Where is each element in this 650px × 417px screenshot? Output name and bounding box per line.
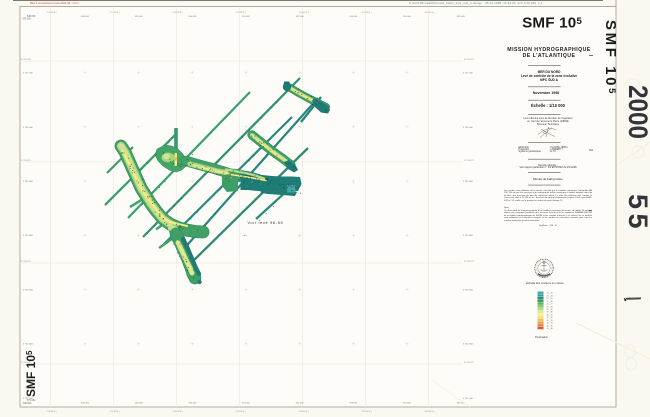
svg-text:24 _ 25: 24 _ 25 [547,298,553,300]
svg-text:5 736 000: 5 736 000 [23,127,34,129]
svg-text:5 734 000: 5 734 000 [23,235,34,237]
svg-text:548 000: 548 000 [81,16,90,18]
svg-text:51°18'00"N: 51°18'00"N [21,261,32,263]
svg-text:22 _ 23: 22 _ 23 [547,293,553,295]
svg-text:51°18'00"N: 51°18'00"N [464,261,475,263]
svg-text:3°01'00"E |: 3°01'00"E | [362,12,372,14]
svg-text:3°02'00"E |: 3°02'00"E | [425,411,435,413]
svg-text:548 000: 548 000 [81,402,90,404]
svg-text:3°00'00"E |: 3°00'00"E | [299,12,309,14]
svg-text:27 _ 28: 27 _ 28 [547,306,553,308]
svg-text:51°22'00"N: 51°22'00"N [464,59,475,61]
svg-text:2°56'00"E |: 2°56'00"E | [47,12,57,14]
svg-text:552 000: 552 000 [296,16,305,18]
svg-text:554 000: 554 000 [403,16,412,18]
svg-text:33 _ 34: 33 _ 34 [547,323,553,325]
svg-text:550 000: 550 000 [188,402,197,404]
svg-text:34 _ 35: 34 _ 35 [547,325,553,327]
svg-text:2°56'00"E |: 2°56'00"E | [47,411,57,413]
svg-text:30 _ 31: 30 _ 31 [547,314,553,316]
svg-text:2°59'00"E |: 2°59'00"E | [236,411,246,413]
svg-text:51°22'00"N: 51°22'00"N [21,59,32,61]
svg-text:2°58'00"E |: 2°58'00"E | [173,411,183,413]
svg-text:5 735 000: 5 735 000 [23,181,34,183]
svg-text:548 000: 548 000 [27,16,36,18]
svg-text:5 731 000: 5 731 000 [463,398,474,400]
svg-text:5 734 000: 5 734 000 [463,235,474,237]
svg-text:3°02'00"E |: 3°02'00"E | [425,12,435,14]
svg-text:31 _ 32: 31 _ 32 [547,317,553,319]
svg-text:51°20'00"N: 51°20'00"N [464,160,475,162]
svg-text:51°16'00"N: 51°16'00"N [464,362,475,364]
svg-text:553 000: 553 000 [349,402,358,404]
svg-text:32 _ 33: 32 _ 33 [547,320,553,322]
svg-text:2°57'00"E |: 2°57'00"E | [110,411,120,413]
svg-text:5 736 000: 5 736 000 [463,127,474,129]
svg-text:551 000: 551 000 [242,16,251,18]
svg-text:555 000: 555 000 [457,16,466,18]
svg-text:29 _ 30: 29 _ 30 [547,312,553,314]
svg-text:35 _ 36: 35 _ 36 [547,328,553,330]
svg-text:5 732 000: 5 732 000 [23,344,34,346]
svg-text:551 000: 551 000 [242,402,251,404]
svg-text:23 _ 24: 23 _ 24 [547,295,553,297]
svg-text:25 _ 26: 25 _ 26 [547,301,553,303]
svg-text:5 737 000: 5 737 000 [463,73,474,75]
svg-text:5 731 000: 5 731 000 [23,398,34,400]
svg-text:553 000: 553 000 [349,16,358,18]
svg-text:5 732 000: 5 732 000 [463,344,474,346]
svg-text:552 000: 552 000 [296,402,305,404]
svg-text:548 000: 548 000 [23,403,32,405]
svg-text:3°00'00"E |: 3°00'00"E | [299,411,309,413]
svg-text:550 000: 550 000 [188,16,197,18]
svg-text:2°59'00"E |: 2°59'00"E | [236,12,246,14]
svg-text:575 000: 575 000 [27,400,36,402]
svg-text:554 000: 554 000 [403,402,412,404]
svg-text:549 000: 549 000 [135,16,144,18]
svg-text:5 735 000: 5 735 000 [463,181,474,183]
svg-text:3°01'00"E |: 3°01'00"E | [362,411,372,413]
svg-text:28 _ 29: 28 _ 29 [547,309,553,311]
svg-text:575 000: 575 000 [23,19,32,21]
svg-text:51°20'00"N: 51°20'00"N [21,160,32,162]
svg-text:5 733 000: 5 733 000 [23,289,34,291]
svg-text:5 733 000: 5 733 000 [463,289,474,291]
svg-text:26 _ 27: 26 _ 27 [547,304,553,306]
svg-text:2°57'00"E |: 2°57'00"E | [110,12,120,14]
svg-text:5 737 000: 5 737 000 [23,73,34,75]
svg-text:2°58'00"E |: 2°58'00"E | [173,12,183,14]
svg-text:549 000: 549 000 [135,402,144,404]
